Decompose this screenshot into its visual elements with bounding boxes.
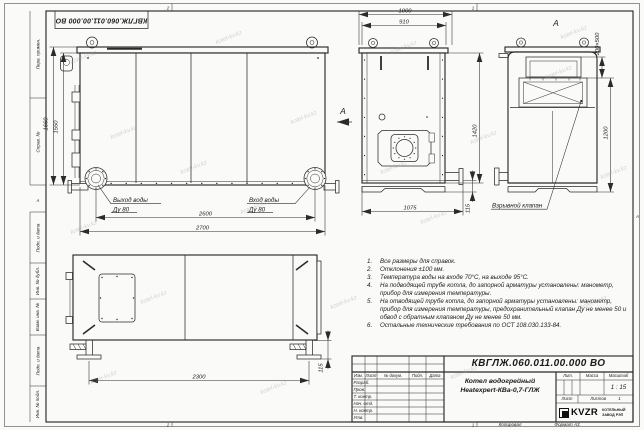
dim-view-a-height: 1200 bbox=[604, 126, 610, 140]
margin-cell-sprav-no: Справ. № bbox=[33, 98, 43, 185]
title-doc-number: КВГЛЖ.060.011.00.000 ВО bbox=[444, 356, 633, 372]
row-label-tkontr: Т. контр. bbox=[354, 393, 378, 400]
note-item: 4.На подводящей трубе котла, до запорной… bbox=[366, 282, 634, 298]
dim-end-width-bottom: 1075 bbox=[404, 206, 418, 212]
margin-cell-podp-data-2: Подп. и дата bbox=[33, 335, 43, 386]
sheets-cell: Листов 1 bbox=[578, 395, 633, 403]
product-name-line2: Heatexpert-КВа-0,7-ГЛЖ bbox=[444, 387, 556, 396]
view-a-drawing: А Взрывной клапан 200×500 1200 bbox=[491, 18, 614, 210]
note-number: 3. bbox=[366, 274, 380, 282]
note-number: 4. bbox=[366, 282, 380, 298]
end-view-drawing: 1000 910 1420 115 1075 bbox=[359, 9, 484, 216]
note-item: 3.Температура воды на входе 70°С, на вых… bbox=[366, 274, 634, 282]
row-label-nkontr: Н. контр. bbox=[354, 407, 378, 414]
view-a-title: А bbox=[552, 18, 559, 28]
logo-icon bbox=[559, 408, 569, 418]
row-label-prov: Пров. bbox=[354, 386, 378, 393]
note-item: 2.Отклонения ±100 мм. bbox=[366, 266, 634, 274]
row-label-utv: Утв. bbox=[354, 414, 378, 422]
col-header-list: Лист bbox=[365, 372, 377, 379]
row-label-nachotd: Нач. отд. bbox=[354, 400, 378, 407]
sheets-label: Листов bbox=[590, 395, 606, 403]
dim-width-flanges: 2600 bbox=[198, 212, 213, 218]
dim-end-height: 1420 bbox=[473, 124, 479, 138]
dim-top-foot: 115 bbox=[319, 363, 325, 373]
col-header-podp: Подп. bbox=[409, 372, 426, 379]
technical-notes: 1.Все размеры для справок. 2.Отклонения … bbox=[366, 258, 634, 330]
scale-value: 1 : 15 bbox=[604, 380, 633, 395]
mass-header: Масса bbox=[580, 372, 604, 380]
fold-mark-bottom-right: 1 bbox=[472, 422, 474, 427]
inlet-label: Вход воды bbox=[249, 197, 279, 204]
margin-cell-inv-podl: Инв. № подл. bbox=[33, 386, 43, 422]
note-number: 1. bbox=[366, 258, 380, 266]
row-label-razrab: Разраб. bbox=[354, 379, 378, 386]
explosion-valve-label: Взрывной клапан bbox=[492, 203, 543, 210]
view-arrow-label: А bbox=[339, 106, 346, 116]
note-text: Все размеры для справок. bbox=[380, 258, 634, 266]
outlet-dn-label: Ду 80 bbox=[112, 206, 130, 213]
margin-cell-inv-dubl: Инв. № дубл. bbox=[33, 263, 43, 299]
note-text: Температура воды на входе 70°С, на выход… bbox=[380, 274, 634, 282]
dim-height-overall: 1660 bbox=[44, 117, 50, 131]
fold-mark-top-right: 1 bbox=[472, 6, 474, 11]
company-logo: KVZR КОТЕЛЬНЫЙ ЗАВОД РЭП bbox=[557, 403, 633, 422]
note-item: 6.Остальные технические требования по ОС… bbox=[366, 322, 634, 330]
dim-end-width-overall: 1000 bbox=[399, 9, 413, 15]
sheet-label: Лист bbox=[556, 395, 578, 403]
margin-cell-perv-primen: Перв. примен. bbox=[33, 11, 43, 98]
top-view-drawing: 2300 115 bbox=[66, 255, 332, 385]
footer-copy-label: Копировал bbox=[482, 422, 538, 428]
logo-text: KVZR bbox=[571, 407, 598, 418]
col-header-docnum: № докум. bbox=[377, 372, 409, 379]
dim-end-width-casing: 910 bbox=[399, 20, 409, 26]
footer-format-label: Формат А3 bbox=[537, 422, 597, 428]
note-text: Отклонения ±100 мм. bbox=[380, 266, 634, 274]
product-name: Котел водогрейный Heatexpert-КВа-0,7-ГЛЖ bbox=[444, 373, 556, 400]
dim-legs-span: 2300 bbox=[192, 375, 207, 381]
dim-end-foot: 115 bbox=[466, 203, 472, 213]
note-number: 2. bbox=[366, 266, 380, 274]
product-name-line1: Котел водогрейный bbox=[444, 378, 556, 387]
dim-valve-size: 200×500 bbox=[595, 32, 601, 57]
zone-letter-left: А bbox=[36, 198, 40, 203]
logo-subtitle: КОТЕЛЬНЫЙ ЗАВОД РЭП bbox=[602, 408, 625, 417]
note-text: Остальные технические требования по ОСТ … bbox=[380, 322, 634, 330]
inlet-dn-label: Ду 80 bbox=[248, 206, 266, 213]
drawing-sheet: 2 1 2 1 А А bbox=[0, 0, 644, 430]
note-item: 1.Все размеры для справок. bbox=[366, 258, 634, 266]
zone-letter-right: А bbox=[635, 214, 639, 219]
note-number: 5. bbox=[366, 298, 380, 322]
note-number: 6. bbox=[366, 322, 380, 330]
logo-sub-line2: ЗАВОД РЭП bbox=[602, 413, 625, 418]
col-header-izm: Изм. bbox=[352, 372, 365, 379]
scale-header: Масштаб bbox=[604, 372, 633, 380]
lit-header: Лит. bbox=[556, 372, 580, 380]
note-text: На отводящей трубе котла, до запорной ар… bbox=[380, 298, 634, 322]
outlet-label: Выход воды bbox=[113, 197, 148, 204]
dim-height-body: 1550 bbox=[54, 120, 60, 134]
front-view-drawing: 1660 1550 2600 2700 Выход воды Ду 80 Вхо… bbox=[44, 37, 353, 236]
col-header-data: Дата bbox=[426, 372, 444, 379]
fold-mark-top-left: 2 bbox=[166, 6, 170, 11]
sheets-value: 1 bbox=[618, 395, 620, 403]
margin-cell-podp-data-1: Подп. и дата bbox=[33, 212, 43, 263]
note-item: 5.На отводящей трубе котла, до запорной … bbox=[366, 298, 634, 322]
top-stamp-doc-number: КВГЛЖ.060.011.00.000 ВО bbox=[55, 11, 148, 29]
dim-width-overall: 2700 bbox=[195, 226, 210, 232]
margin-cell-vzam-inv: Взам. инв. № bbox=[33, 299, 43, 335]
note-text: На подводящей трубе котла, до запорной а… bbox=[380, 282, 634, 298]
